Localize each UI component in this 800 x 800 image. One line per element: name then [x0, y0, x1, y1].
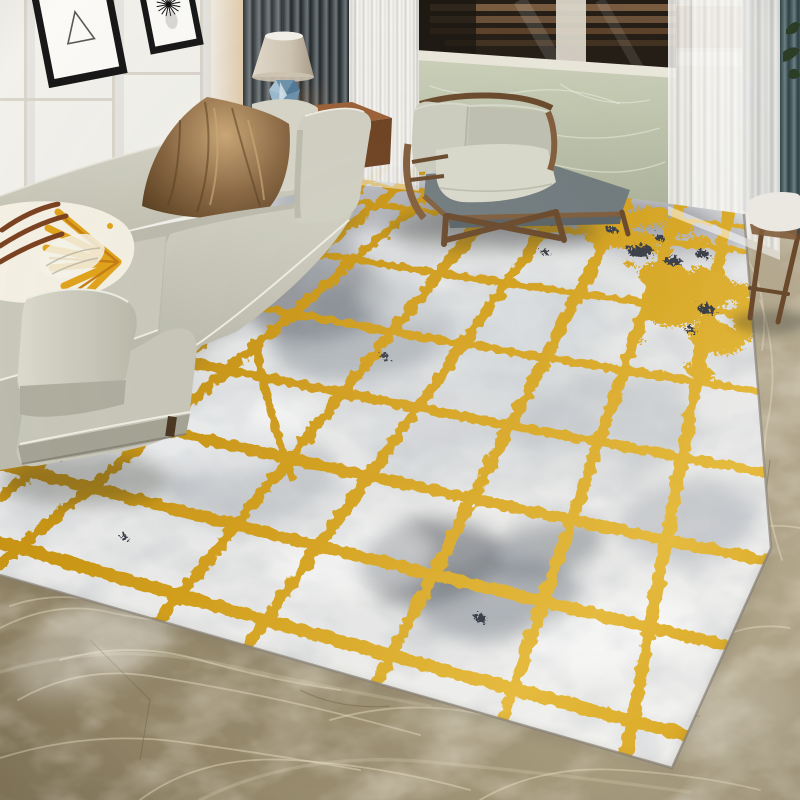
living-room-photo	[0, 0, 800, 800]
scene-canvas	[0, 0, 800, 800]
vignette-overlay	[0, 0, 800, 800]
